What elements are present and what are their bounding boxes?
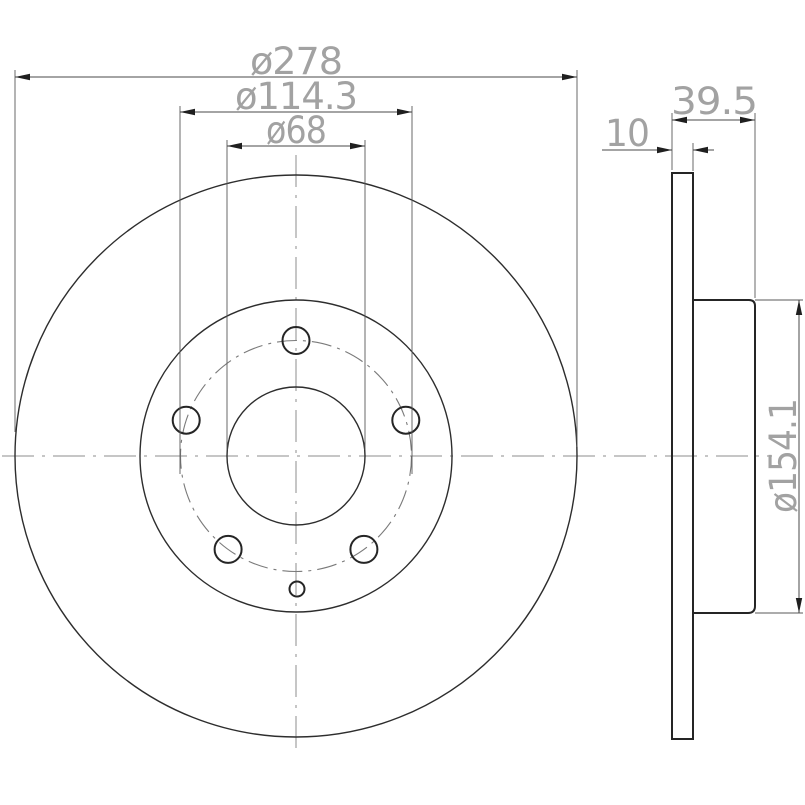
hub-diameter-dimension: ø154.1	[755, 300, 805, 613]
thickness-label: 10	[605, 112, 649, 155]
arrowhead-icon	[693, 147, 708, 153]
center-bore-label: ø68	[266, 109, 326, 152]
arrowhead-icon	[180, 109, 195, 115]
arrowhead-icon	[397, 109, 412, 115]
arrowhead-icon	[227, 143, 242, 149]
arrowhead-icon	[562, 74, 577, 80]
arrowhead-icon	[15, 74, 30, 80]
bolt-hole	[392, 407, 419, 434]
brake-disc-drawing: ø278 ø114.3 ø68	[0, 0, 805, 805]
arrowhead-icon	[796, 300, 802, 315]
hub-diameter-label: ø154.1	[762, 399, 805, 513]
overall-width-dimension: 39.5	[671, 80, 757, 298]
overall-width-label: 39.5	[671, 80, 757, 123]
arrowhead-icon	[350, 143, 365, 149]
locating-screw-hole	[290, 582, 305, 597]
arrowhead-icon	[796, 598, 802, 613]
arrowhead-icon	[657, 147, 672, 153]
side-view: 39.5 10 ø154.1	[602, 80, 805, 739]
front-view: ø278 ø114.3 ø68	[2, 40, 772, 753]
technical-drawing-canvas: ø278 ø114.3 ø68	[0, 0, 805, 805]
